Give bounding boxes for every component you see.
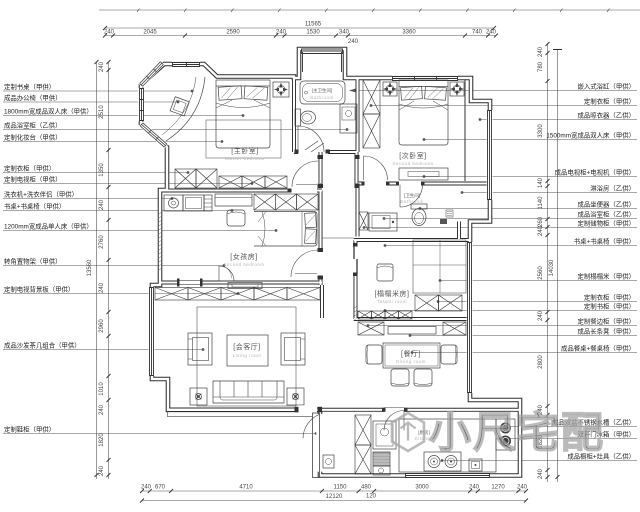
svg-text:Second bedroom: Second bedroom — [223, 262, 264, 267]
svg-text:240: 240 — [469, 485, 480, 491]
svg-text:成品浴室柜（乙供）: 成品浴室柜（乙供） — [4, 121, 62, 130]
svg-text:2510: 2510 — [99, 105, 105, 119]
svg-text:[餐厅]: [餐厅] — [401, 349, 421, 358]
svg-text:小尺宅配: 小尺宅配 — [429, 409, 605, 456]
svg-text:240: 240 — [538, 310, 544, 321]
svg-text:1820: 1820 — [99, 433, 105, 447]
svg-text:定制书柜（甲供）: 定制书柜（甲供） — [584, 302, 635, 311]
svg-text:成品餐桌+餐桌椅（甲供）: 成品餐桌+餐桌椅（甲供） — [561, 344, 635, 353]
svg-text:1530: 1530 — [306, 30, 320, 36]
svg-text:240: 240 — [517, 485, 528, 491]
svg-text:240: 240 — [99, 199, 105, 210]
svg-text:1350: 1350 — [99, 163, 105, 177]
svg-text:定制化妆台（甲供）: 定制化妆台（甲供） — [4, 133, 62, 142]
svg-text:成品浴室柜（乙供）: 成品浴室柜（乙供） — [577, 210, 635, 219]
svg-text:定制衣柜（甲供）: 定制衣柜（甲供） — [584, 97, 635, 106]
svg-text:480: 480 — [361, 485, 372, 491]
svg-text:Master bedroom: Master bedroom — [225, 156, 265, 161]
svg-text:[女孩房]: [女孩房] — [230, 252, 257, 261]
svg-text:11565: 11565 — [305, 22, 322, 28]
svg-text:[会客厅]: [会客厅] — [233, 342, 260, 351]
svg-text:Bathroom: Bathroom — [310, 95, 334, 100]
svg-text:Tatami room: Tatami room — [377, 299, 407, 304]
svg-text:[主卫生间]: [主卫生间] — [312, 87, 333, 94]
svg-text:1270: 1270 — [491, 485, 505, 491]
svg-text:[卫生间]: [卫生间] — [404, 192, 420, 199]
svg-text:定制电视柜（甲供）: 定制电视柜（甲供） — [4, 175, 62, 184]
svg-text:[主卧室]: [主卧室] — [231, 146, 258, 155]
svg-text:成品长条凳（甲供）: 成品长条凳（甲供） — [577, 327, 635, 336]
svg-text:670: 670 — [155, 485, 166, 491]
svg-text:2760: 2760 — [99, 235, 105, 249]
svg-text:240: 240 — [99, 404, 105, 415]
svg-text:2560: 2560 — [538, 266, 544, 280]
svg-text:定制鞋柜（甲供）: 定制鞋柜（甲供） — [4, 425, 55, 434]
svg-text:240: 240 — [486, 30, 497, 36]
svg-text:[次卧室]: [次卧室] — [399, 151, 426, 160]
svg-text:740: 740 — [472, 30, 483, 36]
svg-text:3000: 3000 — [415, 485, 429, 491]
svg-text:定制衣柜（甲供）: 定制衣柜（甲供） — [584, 293, 635, 302]
svg-text:3300: 3300 — [538, 124, 544, 138]
svg-text:Bathroom: Bathroom — [400, 199, 424, 204]
svg-text:340: 340 — [339, 30, 350, 36]
svg-text:成品办公椅（甲供）: 成品办公椅（甲供） — [4, 93, 62, 102]
svg-text:240: 240 — [276, 30, 287, 36]
svg-text:14030: 14030 — [549, 259, 555, 276]
svg-text:2800: 2800 — [538, 355, 544, 369]
svg-text:洗衣机+洗衣伴侣（甲供）: 洗衣机+洗衣伴侣（甲供） — [4, 190, 78, 199]
svg-text:2960: 2960 — [99, 319, 105, 333]
svg-text:240: 240 — [538, 46, 544, 57]
svg-text:[榻榻米房]: [榻榻米房] — [375, 289, 410, 298]
svg-text:定制储物柜（甲供）: 定制储物柜（甲供） — [577, 219, 635, 228]
svg-text:Dining room: Dining room — [396, 359, 426, 364]
svg-text:3360: 3360 — [402, 30, 416, 36]
svg-text:240: 240 — [104, 30, 115, 36]
svg-text:Living room: Living room — [233, 353, 262, 358]
svg-text:定制餐边柜（甲供）: 定制餐边柜（甲供） — [577, 317, 635, 326]
svg-text:1800mm宽成品双人床（甲供）: 1800mm宽成品双人床（甲供） — [4, 107, 93, 116]
svg-text:书桌+书桌椅（甲供）: 书桌+书桌椅（甲供） — [4, 202, 65, 211]
svg-text:书桌+书桌椅（甲供）: 书桌+书桌椅（甲供） — [574, 237, 635, 246]
svg-text:240: 240 — [348, 39, 359, 45]
svg-text:260: 260 — [538, 216, 544, 227]
svg-text:240: 240 — [141, 485, 152, 491]
svg-text:12120: 12120 — [326, 494, 343, 500]
svg-text:4710: 4710 — [239, 485, 253, 491]
svg-text:成品沙发茶几组合（甲供）: 成品沙发茶几组合（甲供） — [4, 341, 81, 350]
svg-text:240: 240 — [99, 465, 105, 476]
svg-text:120: 120 — [366, 494, 377, 500]
svg-text:2045: 2045 — [143, 30, 157, 36]
svg-text:定制书桌（甲供）: 定制书桌（甲供） — [4, 82, 55, 91]
svg-text:780: 780 — [538, 61, 544, 72]
svg-text:240: 240 — [99, 61, 105, 72]
svg-text:240: 240 — [99, 282, 105, 293]
svg-text:淋浴房（乙供）: 淋浴房（乙供） — [590, 184, 635, 193]
svg-text:240: 240 — [538, 225, 544, 236]
svg-text:13560: 13560 — [87, 259, 93, 276]
svg-text:Second bedroom: Second bedroom — [392, 161, 433, 166]
svg-text:140: 140 — [538, 177, 544, 188]
svg-text:1200mm宽成品单人床（甲供）: 1200mm宽成品单人床（甲供） — [4, 222, 93, 231]
svg-text:1500mm宽成品双人床（甲供）: 1500mm宽成品双人床（甲供） — [546, 131, 635, 140]
svg-text:定制电视背景板（甲供）: 定制电视背景板（甲供） — [4, 285, 74, 294]
svg-text:成品晾衣器（乙供）: 成品晾衣器（乙供） — [577, 111, 635, 120]
svg-text:2590: 2590 — [226, 30, 240, 36]
svg-text:转角置物架（甲供）: 转角置物架（甲供） — [4, 257, 62, 266]
svg-text:成品坐便器（乙供）: 成品坐便器（乙供） — [577, 200, 635, 209]
svg-text:成品电视柜+电视机（甲供）: 成品电视柜+电视机（甲供） — [555, 168, 635, 177]
svg-text:1150: 1150 — [334, 485, 348, 491]
svg-text:1140: 1140 — [538, 196, 544, 210]
svg-text:定制榻榻米（甲供）: 定制榻榻米（甲供） — [577, 272, 635, 281]
svg-text:1010: 1010 — [99, 382, 105, 396]
svg-text:嵌入式浴缸（甲供）: 嵌入式浴缸（甲供） — [577, 82, 635, 91]
svg-text:定制衣柜（甲供）: 定制衣柜（甲供） — [4, 164, 55, 173]
svg-text:240: 240 — [538, 468, 544, 479]
